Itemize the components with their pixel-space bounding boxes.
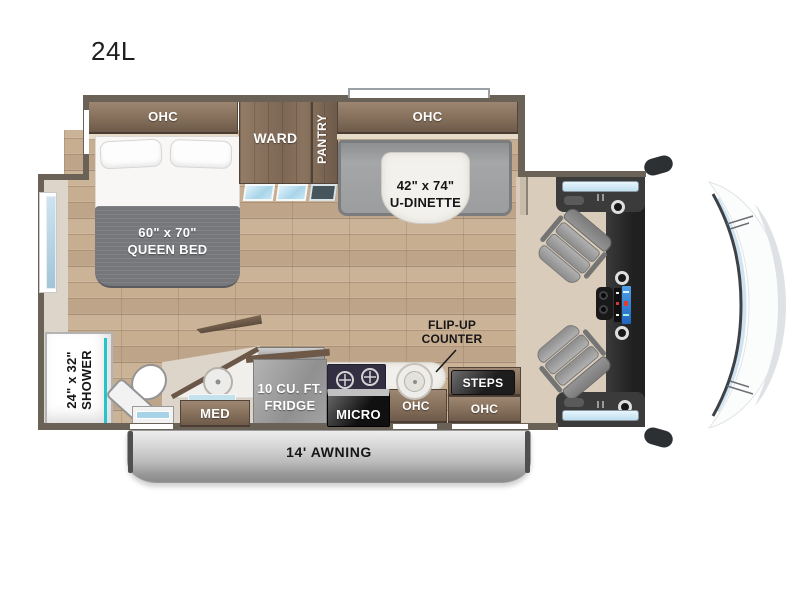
bed-ohc-label: OHC: [148, 109, 178, 124]
cabinet-glass-door-2: [276, 184, 308, 201]
awning-left-cap: [128, 431, 133, 473]
console-controls: [614, 288, 621, 322]
window-bottom-1: [130, 424, 173, 429]
dash-vent-1: [611, 200, 625, 214]
wall-cab-top: [518, 171, 646, 177]
entry-overhead-cabinet: OHC: [448, 396, 521, 423]
window-left-wall: [84, 110, 89, 154]
wall-stub: [520, 177, 528, 215]
shower: 24" x 32" SHOWER: [45, 332, 113, 427]
bed-size-label: 60" x 70": [95, 225, 240, 240]
passenger-door-handle: [564, 196, 584, 205]
steps-label: STEPS: [452, 371, 514, 394]
window-bottom-2: [393, 424, 437, 429]
cabinet-glass-door-1: [243, 184, 275, 201]
sink-drain: [413, 380, 417, 384]
door-tick-2: [602, 194, 604, 201]
queen-bed: 60" x 70" QUEEN BED: [95, 206, 240, 288]
driver-door-handle: [564, 398, 584, 407]
med-label: MED: [200, 406, 230, 421]
shower-label-group: 24" x 32" SHOWER: [64, 350, 94, 410]
fridge-name-label: FRIDGE: [254, 398, 326, 413]
model-title: 24L: [91, 36, 136, 67]
dinette-ohc-label: OHC: [413, 109, 443, 124]
side-mirror-top: [642, 153, 675, 177]
dinette-name-label: U-DINETTE: [382, 195, 469, 210]
entry-steps: STEPS: [451, 370, 515, 395]
wardrobe-label: WARD: [239, 128, 312, 148]
infotainment-screen: [622, 286, 631, 324]
pillow-left: [99, 138, 162, 169]
driver-door-window: [562, 410, 639, 421]
side-mirror-bottom: [642, 425, 675, 449]
pillow-right: [170, 139, 233, 169]
slideout-indicator: [348, 88, 490, 98]
bed-name-label: QUEEN BED: [95, 242, 240, 257]
entry-ohc-label: OHC: [471, 402, 499, 416]
kitchen-ohc-label: OHC: [402, 399, 430, 413]
entry-door-gap: [452, 424, 528, 429]
steering-wheel-hub: [599, 291, 608, 300]
dash-vent-2: [615, 271, 629, 285]
flipup-callout: FLIP-UP COUNTER: [402, 318, 502, 346]
floorplan-canvas: 24L 14' AWNING OHC: [0, 0, 800, 600]
shower-size-label: 24" x 32": [64, 350, 79, 410]
wall-rear-notch: [38, 174, 89, 180]
bath-step-accent: [136, 411, 170, 419]
awning-label: 14' AWNING: [286, 444, 372, 460]
bath-vanity: [170, 340, 262, 402]
wall-dinette-right: [518, 95, 525, 177]
shower-glass-accent: [104, 338, 107, 424]
rear-window-glass: [46, 196, 56, 289]
cooktop: [327, 364, 386, 392]
flipup-label-1: FLIP-UP: [402, 318, 502, 332]
passenger-door-window: [562, 181, 639, 192]
front-cap: [695, 160, 795, 450]
door-tick-1: [597, 194, 599, 201]
med-cabinet: MED: [180, 400, 250, 427]
fridge-size-label: 10 CU. FT.: [254, 381, 326, 396]
dinette-size-label: 42" x 74": [382, 178, 469, 193]
fridge: 10 CU. FT. FRIDGE: [253, 359, 327, 427]
awning-right-cap: [525, 431, 530, 473]
bed-overhead-cabinet: OHC: [88, 100, 238, 134]
micro-label: MICRO: [328, 404, 389, 424]
door-tick-3: [597, 401, 599, 408]
dash-vent-3: [615, 326, 629, 340]
pantry-base-panel: [309, 184, 337, 201]
dinette-overhead-cabinet: OHC: [337, 100, 518, 134]
shower-name-label: SHOWER: [79, 350, 94, 410]
door-tick-4: [602, 401, 604, 408]
flipup-label-2: COUNTER: [402, 332, 502, 346]
awning: 14' AWNING: [127, 430, 531, 483]
steering-wheel-lower: [599, 305, 608, 314]
pantry-label: PANTRY: [315, 103, 329, 175]
microwave: MICRO: [327, 389, 390, 427]
u-dinette-table: 42" x 74" U-DINETTE: [381, 152, 470, 224]
